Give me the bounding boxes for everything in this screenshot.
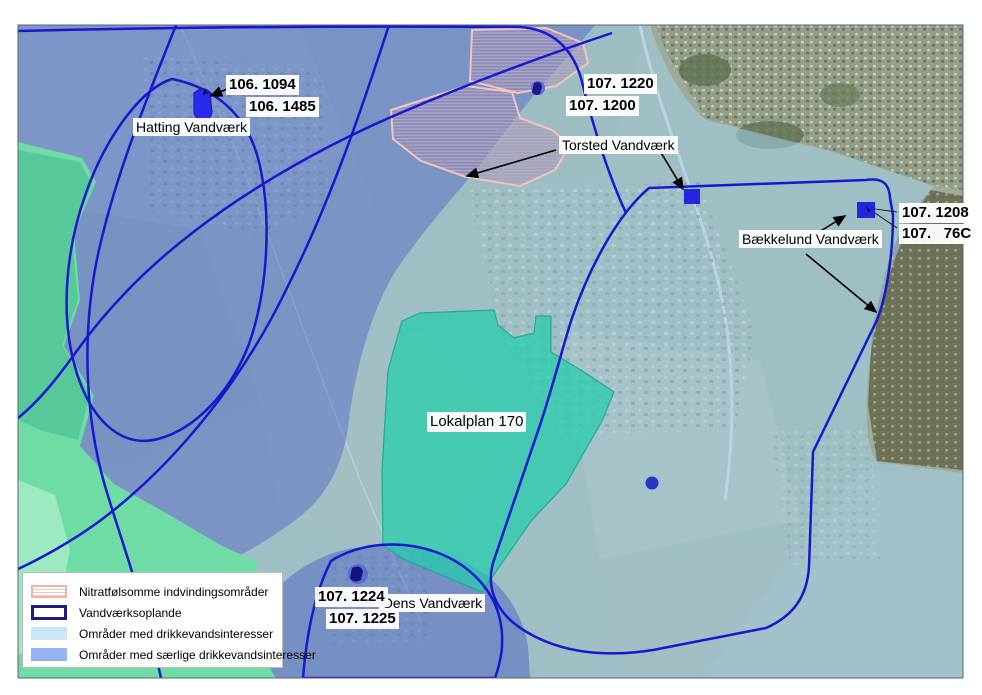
oens-well-marker bbox=[350, 567, 363, 582]
baekkelund-well-marker bbox=[857, 202, 875, 218]
lokalplan-label: Lokalplan 170 bbox=[427, 412, 526, 432]
hatting-well-marker bbox=[194, 89, 212, 120]
light-blue-swatch-icon bbox=[31, 627, 67, 640]
legend-row-dark-blue: Områder med særlige drikkevandsinteresse… bbox=[31, 644, 282, 665]
well-id-label: 107. 1220 bbox=[584, 74, 657, 94]
map-screenshot: 106. 1094 106. 1485 Hatting Vandværk 107… bbox=[0, 0, 982, 695]
legend-label: Områder med drikkevandsinteresser bbox=[79, 627, 273, 641]
well-id-label: 107. 1225 bbox=[326, 609, 399, 629]
nitrate-swatch-icon bbox=[31, 585, 67, 598]
legend-row-opland: Vandværksoplande bbox=[31, 602, 282, 623]
well-id-label: 107. 1200 bbox=[566, 96, 639, 116]
legend-label: Nitratfølsomme indvindingsområder bbox=[79, 585, 268, 599]
legend-row-nitrate: Nitratfølsomme indvindingsområder bbox=[31, 581, 282, 602]
trees bbox=[679, 54, 731, 86]
torsted-well-marker bbox=[684, 189, 700, 204]
legend-label: Vandværksoplande bbox=[79, 606, 182, 620]
well-id-label: 107. 76C bbox=[899, 224, 974, 244]
well-id-label: 106. 1485 bbox=[246, 97, 319, 117]
map-legend: Nitratfølsomme indvindingsområder Vandvæ… bbox=[22, 572, 283, 668]
trees bbox=[820, 83, 860, 107]
legend-label: Områder med særlige drikkevandsinteresse… bbox=[79, 648, 316, 662]
well-id-label: 107. 1224 bbox=[315, 587, 388, 607]
medium-blue-swatch-icon bbox=[31, 648, 67, 661]
well-id-label: 107. 1208 bbox=[899, 203, 972, 223]
well-name-label: Hatting Vandværk bbox=[133, 118, 250, 136]
legend-row-light-blue: Områder med drikkevandsinteresser bbox=[31, 623, 282, 644]
well-id-label: 106. 1094 bbox=[226, 75, 299, 95]
well-name-label: Bækkelund Vandværk bbox=[739, 230, 882, 248]
well-name-label: Torsted Vandværk bbox=[559, 136, 678, 154]
borehole-dot-marker bbox=[646, 477, 659, 490]
opland-swatch-icon bbox=[31, 605, 67, 620]
